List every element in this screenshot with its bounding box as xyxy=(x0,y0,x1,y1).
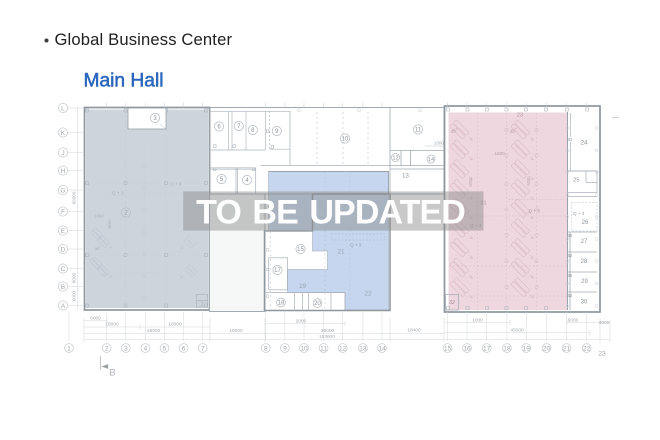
svg-text:14: 14 xyxy=(428,157,434,163)
svg-text:11: 11 xyxy=(320,345,327,352)
svg-text:3: 3 xyxy=(124,345,128,352)
svg-text:2000: 2000 xyxy=(296,319,307,325)
svg-text:18: 18 xyxy=(503,345,511,352)
svg-text:Q + 3: Q + 3 xyxy=(573,211,585,216)
svg-text:15: 15 xyxy=(444,345,452,352)
svg-text:15: 15 xyxy=(297,247,304,253)
svg-text:C: C xyxy=(61,266,66,273)
svg-text:Q + 3: Q + 3 xyxy=(112,191,124,196)
svg-text:17: 17 xyxy=(274,268,281,274)
svg-text:Q + 3: Q + 3 xyxy=(350,243,362,248)
svg-text:45000: 45000 xyxy=(510,327,524,333)
svg-text:L: L xyxy=(61,105,65,112)
svg-text:60000: 60000 xyxy=(72,191,77,204)
svg-text:25: 25 xyxy=(573,177,579,183)
svg-text:27: 27 xyxy=(581,239,588,245)
svg-text:30: 30 xyxy=(581,300,588,306)
svg-text:13: 13 xyxy=(359,345,367,352)
svg-text:12: 12 xyxy=(339,345,347,352)
svg-text:22: 22 xyxy=(364,291,372,298)
svg-text:J: J xyxy=(61,150,64,157)
svg-text:K: K xyxy=(61,130,66,137)
svg-text:7: 7 xyxy=(201,345,205,352)
svg-text:18400: 18400 xyxy=(407,328,421,334)
svg-text:18000: 18000 xyxy=(229,328,243,334)
svg-text:Global Business Center: Global Business Center xyxy=(55,30,233,49)
svg-text:24: 24 xyxy=(580,140,588,147)
svg-text:H: H xyxy=(61,168,66,175)
svg-text:19: 19 xyxy=(299,283,307,290)
svg-text:1900: 1900 xyxy=(495,151,506,156)
svg-text:23: 23 xyxy=(598,351,606,358)
svg-text:6000: 6000 xyxy=(568,317,579,323)
svg-text:4: 4 xyxy=(144,345,148,352)
svg-text:18000: 18000 xyxy=(105,322,119,328)
svg-text:28: 28 xyxy=(581,259,588,265)
svg-text:1: 1 xyxy=(67,345,71,352)
svg-text:1000: 1000 xyxy=(472,317,483,323)
svg-text:5: 5 xyxy=(163,345,167,352)
svg-text:21: 21 xyxy=(563,345,571,352)
svg-text:6000: 6000 xyxy=(72,290,77,301)
svg-text:20: 20 xyxy=(314,301,321,307)
svg-text:14: 14 xyxy=(378,345,386,352)
svg-text:2: 2 xyxy=(105,345,109,352)
svg-text:Q + 3: Q + 3 xyxy=(170,182,182,187)
svg-text:Q + 3: Q + 3 xyxy=(529,209,541,214)
svg-text:29: 29 xyxy=(581,279,588,285)
svg-text:10: 10 xyxy=(342,137,349,143)
svg-text:36000: 36000 xyxy=(147,328,161,334)
svg-text:153600: 153600 xyxy=(319,334,335,340)
svg-text:13: 13 xyxy=(402,174,409,180)
svg-text:22: 22 xyxy=(583,345,591,352)
svg-text:6000: 6000 xyxy=(72,272,77,283)
svg-text:18000: 18000 xyxy=(168,322,182,328)
svg-text:6: 6 xyxy=(182,345,186,352)
svg-text:G: G xyxy=(60,187,65,194)
svg-text:9000: 9000 xyxy=(107,219,112,229)
svg-text:11: 11 xyxy=(415,128,422,134)
svg-text:17: 17 xyxy=(483,345,491,352)
svg-text:1: 1 xyxy=(201,302,204,308)
svg-text:6000: 6000 xyxy=(526,176,531,186)
svg-text:TO BE UPDATED: TO BE UPDATED xyxy=(196,194,465,232)
svg-text:A: A xyxy=(61,303,66,310)
svg-text:18: 18 xyxy=(278,301,285,307)
svg-text:D: D xyxy=(61,246,66,253)
svg-text:26: 26 xyxy=(582,220,589,226)
svg-text:1890: 1890 xyxy=(94,214,104,219)
svg-text:16: 16 xyxy=(463,345,471,352)
svg-text:B: B xyxy=(109,368,115,379)
svg-text:Main Hall: Main Hall xyxy=(84,70,164,91)
svg-text:21: 21 xyxy=(337,249,345,256)
svg-text:6000: 6000 xyxy=(468,177,473,187)
svg-text:6000: 6000 xyxy=(90,315,101,321)
svg-text:F: F xyxy=(61,209,65,216)
svg-text:9: 9 xyxy=(283,345,287,352)
svg-text:12: 12 xyxy=(392,156,398,162)
svg-text:10: 10 xyxy=(300,345,308,352)
svg-text:20: 20 xyxy=(543,345,551,352)
svg-text:3000: 3000 xyxy=(599,320,610,326)
svg-text:8: 8 xyxy=(264,345,268,352)
svg-text:E: E xyxy=(61,228,66,235)
svg-text:36000: 36000 xyxy=(321,328,335,334)
svg-text:B: B xyxy=(61,284,66,291)
svg-text:1000: 1000 xyxy=(434,141,444,146)
svg-text:32: 32 xyxy=(449,300,455,306)
svg-text:19: 19 xyxy=(523,345,531,352)
svg-text:23: 23 xyxy=(517,113,523,119)
